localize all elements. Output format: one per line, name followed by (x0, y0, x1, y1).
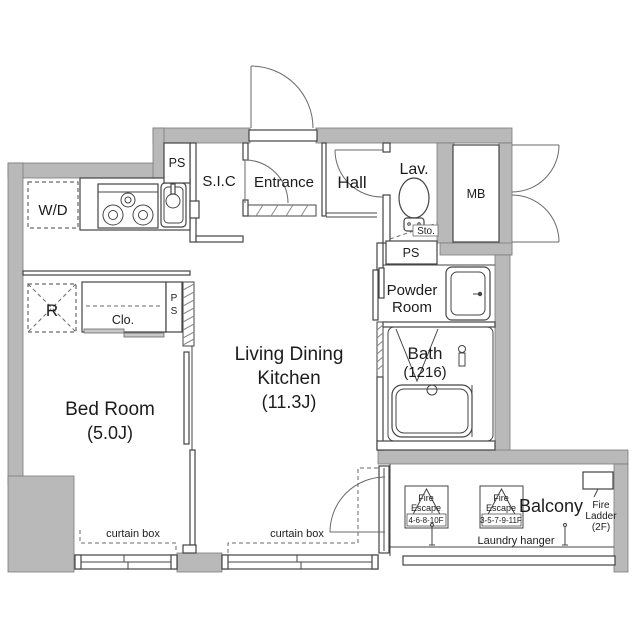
label-balcony: Balcony (519, 496, 583, 516)
wall-hall-lav-top (383, 143, 390, 152)
laundry-pole-icon-1 (429, 524, 435, 546)
label-closet: Clo. (112, 313, 134, 327)
sliding-panel-1 (184, 352, 189, 444)
shower-icon (459, 346, 466, 353)
label-wd: W/D (38, 202, 67, 219)
wall-kitchen-bedroom (23, 271, 190, 275)
label-powder-2: Room (392, 299, 432, 316)
label-fe1-1: Fire (418, 493, 434, 503)
wall-sic-bottom (196, 236, 243, 242)
washbasin-faucet (478, 292, 482, 296)
bathtub-icon (392, 385, 472, 437)
wall-step-column (153, 128, 164, 183)
stove-icon (98, 184, 158, 228)
mb-door-top-arc (512, 145, 559, 192)
entrance-step (248, 205, 316, 216)
sliding-panel-2 (190, 450, 195, 545)
wall-ldk-powder-top (377, 243, 383, 270)
label-sto: Sto. (417, 226, 435, 237)
label-fe2-3: 3-5-7-9-11F (480, 516, 522, 525)
label-ladder-2: Ladder (585, 511, 617, 522)
hatch-strip-bath (377, 322, 383, 377)
fire-ladder-icon (583, 472, 613, 489)
label-ps-mid: PS (403, 246, 420, 260)
windows (75, 555, 378, 569)
label-curtain-ldk: curtain box (270, 528, 324, 540)
wall-lav-mb (437, 143, 454, 243)
label-fe2-2: Escape (486, 503, 516, 513)
mb-door-bottom-arc (512, 195, 559, 242)
wall-bottom-left-block (8, 476, 74, 572)
closet-sliding-door-1 (84, 329, 124, 333)
label-ldk-2: Kitchen (257, 368, 320, 389)
wall-window-pillar (177, 553, 222, 572)
label-entrance: Entrance (254, 174, 314, 191)
label-fe1-3: 4-6-8-10F (408, 516, 443, 525)
powder-sliding-panel-1 (373, 270, 378, 320)
wall-sic-left (190, 143, 196, 242)
entrance-threshold (249, 130, 317, 141)
label-sic: S.I.C (202, 173, 236, 190)
wall-bath-bottom (377, 441, 495, 450)
wall-top-main-right (316, 128, 512, 143)
faucet-icon (171, 184, 175, 194)
wall-top-left (8, 163, 163, 178)
laundry-pole-icon-2 (562, 524, 568, 546)
wall-ldk-bath (377, 377, 383, 450)
label-laundry-hanger: Laundry hanger (477, 535, 554, 547)
label-mb: MB (467, 187, 486, 201)
label-bath-1: Bath (408, 344, 443, 363)
label-lav: Lav. (399, 161, 428, 178)
curtain-box-ldk-line (228, 468, 378, 553)
label-fe2-1: Fire (493, 493, 509, 503)
counter-end-panel (190, 201, 199, 218)
label-fe1-2: Escape (411, 503, 441, 513)
label-powder-1: Powder (387, 282, 438, 299)
wall-balcony-top (378, 450, 628, 464)
label-ladder-1: Fire (592, 500, 610, 511)
label-ldk-3: (11.3J) (262, 392, 317, 412)
label-ps-bed-p: P (171, 293, 178, 304)
label-ps-top: PS (169, 156, 186, 170)
wall-powder-bath (383, 322, 495, 327)
label-ladder-3: (2F) (592, 522, 610, 533)
label-ldk-1: Living Dining (235, 344, 344, 365)
hatch-strip-bedroom (183, 282, 194, 346)
label-hall: Hall (337, 173, 366, 192)
label-bedroom-2: (5.0J) (87, 423, 133, 443)
label-bath-2: (1216) (403, 364, 446, 381)
powder-sliding-panel-2 (379, 268, 384, 298)
toilet-icon (399, 178, 429, 218)
bedroom-ldk-sliding-door (183, 346, 196, 553)
label-curtain-bedroom: curtain box (106, 528, 160, 540)
floor-plan-page: PS S.I.C Entrance Hall Lav. MB Sto. PS P… (0, 0, 639, 640)
wall-left (8, 163, 23, 485)
wall-sic-entrance-top (243, 143, 248, 160)
label-bedroom-1: Bed Room (65, 399, 155, 420)
label-refrigerator: R (46, 301, 58, 320)
curtain-boxes (80, 468, 378, 553)
wall-right-mid (495, 255, 510, 455)
closet-sliding-door-2 (124, 333, 164, 337)
wall-hall-lav-bottom (383, 195, 390, 243)
wall-top-main-left (153, 128, 250, 143)
sliding-door-bottom-stub (183, 545, 196, 553)
balcony-railing (403, 556, 615, 565)
wall-below-mb (440, 243, 512, 255)
label-ps-bed-s: S (171, 306, 178, 317)
wall-mb-right (499, 143, 512, 255)
entrance-door-arc (251, 66, 313, 128)
floor-plan: PS S.I.C Entrance Hall Lav. MB Sto. PS P… (0, 0, 639, 640)
wall-entrance-hall (322, 143, 326, 216)
washbasin-icon (446, 267, 490, 320)
